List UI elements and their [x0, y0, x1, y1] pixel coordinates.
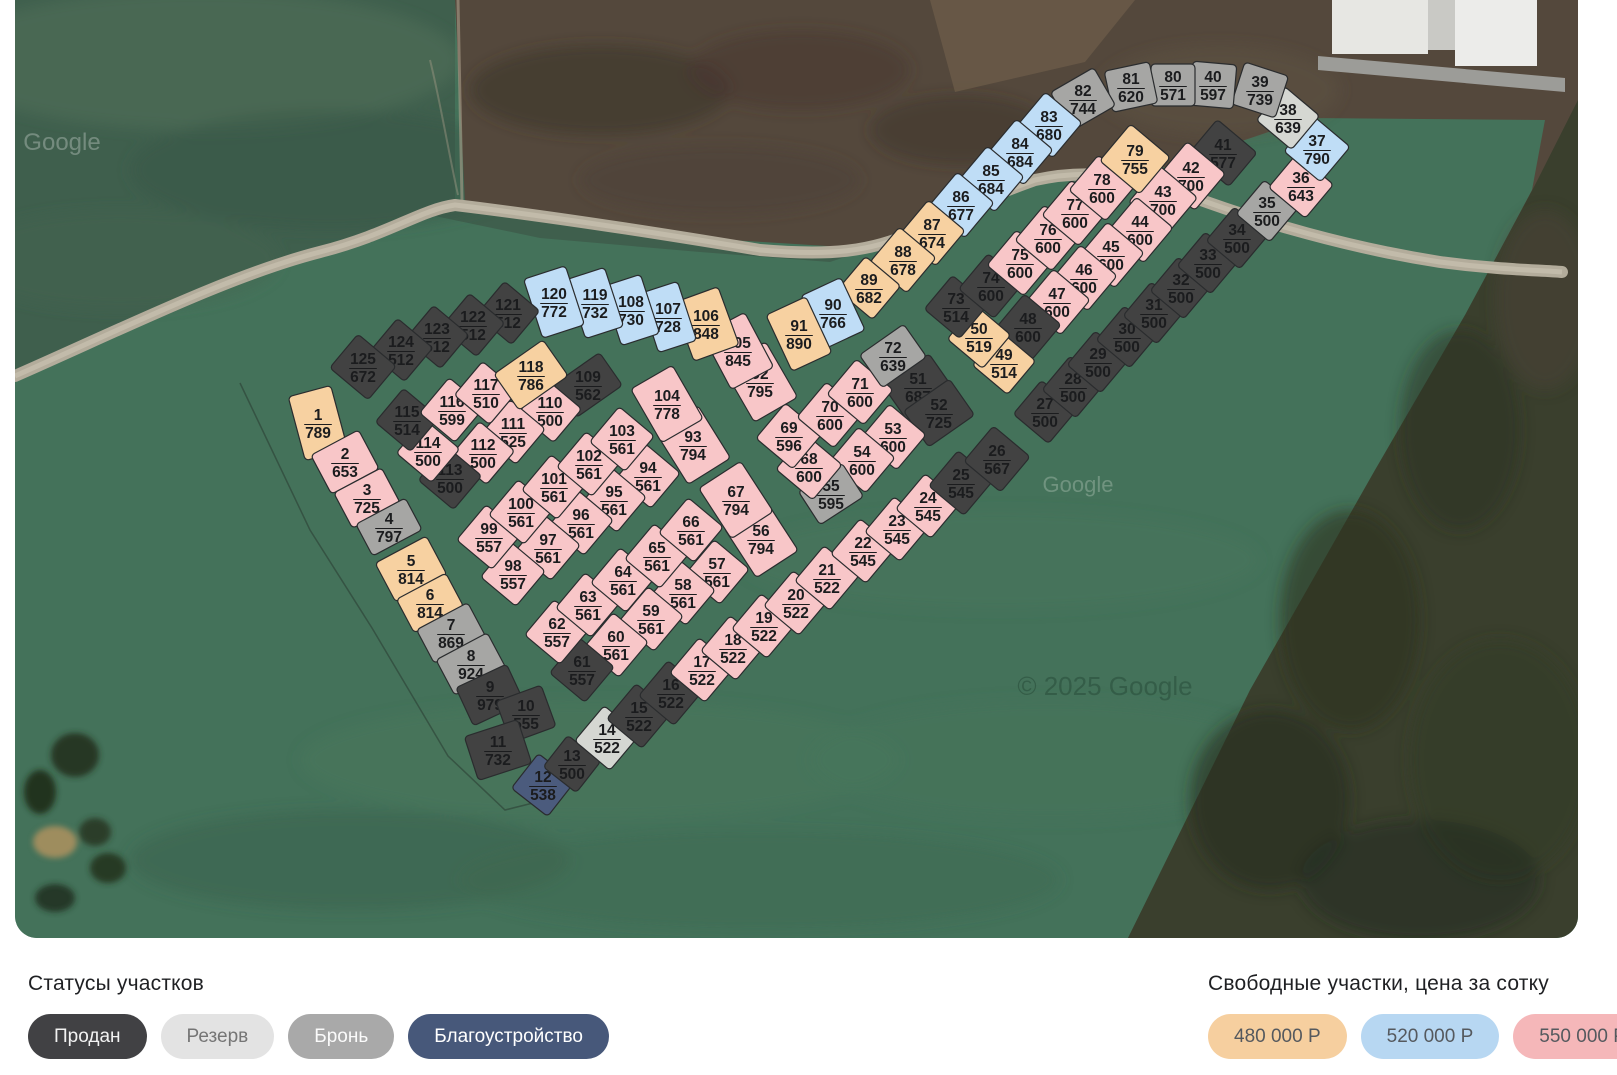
status-pill-sold[interactable]: Продан — [28, 1014, 147, 1059]
status-pill-improve[interactable]: Благоустройство — [408, 1014, 609, 1059]
plot-75-area: 600 — [1007, 265, 1033, 282]
plot-62-number: 62 — [548, 616, 565, 633]
plot-40-area: 597 — [1200, 87, 1226, 104]
plot-109-number: 109 — [575, 369, 601, 386]
plot-81-number: 81 — [1122, 71, 1140, 88]
plot-47-number: 47 — [1048, 286, 1065, 303]
plot-11-area: 732 — [485, 752, 511, 769]
plot-24-area: 545 — [915, 508, 941, 525]
plot-115-number: 115 — [394, 404, 419, 421]
plot-91-number: 91 — [790, 318, 808, 335]
plot-25-area: 545 — [948, 485, 974, 502]
plot-35-number: 35 — [1258, 195, 1276, 212]
plot-118-number: 118 — [518, 359, 543, 376]
plot-122-number: 122 — [460, 309, 486, 326]
plot-1-number: 1 — [314, 407, 323, 424]
plot-108-number: 108 — [618, 294, 644, 311]
plot-51-number: 51 — [909, 371, 927, 388]
plot-114-area: 500 — [415, 453, 441, 470]
plot-6-number: 6 — [426, 587, 435, 604]
plot-48-number: 48 — [1019, 311, 1037, 328]
plot-40-number: 40 — [1204, 69, 1221, 86]
plot-52-number: 52 — [930, 397, 947, 414]
plot-20-number: 20 — [787, 587, 804, 604]
plot-125-number: 125 — [350, 351, 376, 368]
plot-48-area: 600 — [1015, 329, 1041, 346]
plot-112-number: 112 — [470, 437, 495, 454]
plot-63-area: 561 — [575, 607, 601, 624]
plot-109-area: 562 — [575, 387, 601, 404]
plot-36-number: 36 — [1292, 170, 1310, 187]
plot-102-area: 561 — [576, 466, 602, 483]
plot-59-number: 59 — [642, 603, 660, 620]
plot-40[interactable]: 40597 — [1189, 61, 1237, 109]
plot-27-area: 500 — [1032, 414, 1058, 431]
plot-105-area: 845 — [725, 353, 751, 370]
prices-legend: Свободные участки, цена за сотку 480 000… — [1208, 972, 1617, 1059]
plot-80-number: 80 — [1164, 69, 1181, 86]
plot-3-number: 3 — [363, 482, 372, 499]
plot-94-number: 94 — [639, 460, 657, 477]
plot-44-number: 44 — [1131, 214, 1149, 231]
plot-28-area: 500 — [1060, 389, 1086, 406]
plot-42-number: 42 — [1182, 160, 1199, 177]
plot-41-number: 41 — [1214, 137, 1232, 154]
plot-69-area: 596 — [776, 438, 802, 455]
plot-86-number: 86 — [952, 189, 970, 206]
plot-22-area: 545 — [850, 553, 876, 570]
plot-64-number: 64 — [614, 564, 632, 581]
plot-106-number: 106 — [693, 308, 719, 325]
plot-2-area: 653 — [332, 464, 358, 481]
plot-29-area: 500 — [1085, 364, 1111, 381]
status-pill-hold[interactable]: Бронь — [288, 1014, 394, 1059]
plot-67-area: 794 — [723, 502, 749, 519]
statuses-title: Статусы участков — [28, 972, 609, 996]
status-pill-reserve[interactable]: Резерв — [161, 1014, 275, 1059]
plot-118-area: 786 — [518, 377, 544, 394]
plot-93-number: 93 — [684, 429, 702, 446]
plot-93-area: 794 — [680, 447, 706, 464]
price-pill-p480[interactable]: 480 000 Р — [1208, 1014, 1347, 1059]
plot-78-area: 600 — [1089, 190, 1115, 207]
plot-30-area: 500 — [1114, 339, 1140, 356]
plot-98-area: 557 — [500, 576, 526, 593]
plot-79-number: 79 — [1126, 143, 1144, 160]
plot-5-number: 5 — [407, 553, 416, 570]
plot-58-number: 58 — [674, 577, 692, 594]
plot-80-area: 571 — [1160, 87, 1186, 104]
plot-123-number: 123 — [424, 321, 450, 338]
plot-116-area: 599 — [439, 412, 465, 429]
plot-13-area: 500 — [559, 766, 585, 783]
plot-46-number: 46 — [1075, 262, 1093, 279]
plot-90-area: 766 — [820, 315, 846, 332]
plot-14-area: 522 — [594, 740, 620, 757]
plot-101-number: 101 — [541, 471, 567, 488]
plot-11-number: 11 — [490, 734, 507, 751]
plot-99-number: 99 — [480, 521, 498, 538]
plot-7-number: 7 — [447, 617, 456, 634]
plot-33-number: 33 — [1199, 247, 1217, 264]
plot-21-number: 21 — [818, 562, 836, 579]
plot-43-number: 43 — [1154, 184, 1172, 201]
satellite-map-svg: GoogleGoogle© 2025 Google 17892653372547… — [15, 0, 1578, 938]
plot-56-area: 794 — [748, 541, 774, 558]
plot-1-area: 789 — [305, 425, 331, 442]
plot-99-area: 557 — [476, 539, 502, 556]
plot-119-number: 119 — [582, 287, 607, 304]
plot-78-number: 78 — [1093, 172, 1111, 189]
plot-107-number: 107 — [655, 301, 681, 318]
plot-124-number: 124 — [388, 334, 414, 351]
plot-26-number: 26 — [988, 443, 1006, 460]
plot-17-area: 522 — [689, 672, 715, 689]
plot-24-number: 24 — [919, 490, 937, 507]
plot-120-area: 772 — [541, 304, 567, 321]
plot-22-number: 22 — [854, 535, 871, 552]
plot-100-area: 561 — [508, 514, 534, 531]
plot-77-area: 600 — [1062, 215, 1088, 232]
plot-2-number: 2 — [341, 446, 350, 463]
plot-50-area: 519 — [966, 339, 992, 356]
plot-59-area: 561 — [638, 621, 664, 638]
plot-111-number: 111 — [501, 416, 526, 433]
plot-89-area: 682 — [856, 290, 882, 307]
plot-76-area: 600 — [1035, 240, 1061, 257]
plot-55-area: 595 — [818, 496, 844, 513]
plot-31-area: 500 — [1141, 315, 1167, 332]
plot-16-area: 522 — [658, 695, 684, 712]
price-pill-p520[interactable]: 520 000 Р — [1361, 1014, 1500, 1059]
plot-20-area: 522 — [783, 605, 809, 622]
plot-103-number: 103 — [609, 423, 635, 440]
plot-35-area: 500 — [1254, 213, 1280, 230]
google-watermark-3: © 2025 Google — [1017, 671, 1192, 701]
plot-102-number: 102 — [576, 448, 602, 465]
plot-125-area: 672 — [350, 369, 376, 386]
plot-65-area: 561 — [644, 558, 670, 575]
plot-95-number: 95 — [605, 484, 623, 501]
plot-50-number: 50 — [970, 321, 987, 338]
plot-87-number: 87 — [923, 217, 940, 234]
plot-56-number: 56 — [752, 523, 770, 540]
plot-121-number: 121 — [495, 297, 521, 314]
plot-67-number: 67 — [727, 484, 744, 501]
plot-72-number: 72 — [884, 340, 901, 357]
plot-98-number: 98 — [504, 558, 522, 575]
plot-74-area: 600 — [978, 288, 1004, 305]
plot-52-area: 725 — [926, 415, 952, 432]
plot-map[interactable]: GoogleGoogle© 2025 Google 17892653372547… — [15, 0, 1578, 938]
plot-117-area: 510 — [473, 395, 499, 412]
plot-53-number: 53 — [884, 421, 902, 438]
plot-66-area: 561 — [678, 532, 704, 549]
plot-39-area: 739 — [1247, 92, 1273, 109]
plot-71-number: 71 — [851, 376, 869, 393]
plot-8-number: 8 — [467, 648, 476, 665]
plot-26-area: 567 — [984, 461, 1010, 478]
plot-96-number: 96 — [572, 507, 590, 524]
plot-64-area: 561 — [610, 582, 636, 599]
plot-38-area: 639 — [1275, 120, 1301, 137]
plot-90-number: 90 — [824, 297, 841, 314]
plot-120-number: 120 — [541, 286, 567, 303]
plot-39-number: 39 — [1251, 74, 1269, 91]
plot-113-area: 500 — [437, 480, 463, 497]
plot-9-number: 9 — [486, 679, 495, 696]
google-watermark-2: Google — [1043, 472, 1114, 497]
plot-66-number: 66 — [682, 514, 700, 531]
plot-72-area: 639 — [880, 358, 906, 375]
plot-60-number: 60 — [607, 629, 624, 646]
plot-15-area: 522 — [626, 718, 652, 735]
plot-73-number: 73 — [947, 291, 965, 308]
plot-32-area: 500 — [1168, 290, 1194, 307]
plot-79-area: 755 — [1122, 161, 1148, 178]
plot-25-number: 25 — [952, 467, 970, 484]
plot-54-number: 54 — [853, 444, 871, 461]
plot-97-number: 97 — [539, 532, 556, 549]
price-pill-p550[interactable]: 550 000 Р — [1513, 1014, 1617, 1059]
plot-107-area: 728 — [655, 319, 681, 336]
plot-104-number: 104 — [654, 388, 680, 405]
plot-88-area: 678 — [890, 262, 916, 279]
plot-61-number: 61 — [573, 654, 591, 671]
plot-100-number: 100 — [508, 496, 534, 513]
plot-110-number: 110 — [537, 395, 562, 412]
plot-82-number: 82 — [1074, 83, 1091, 100]
google-watermark-1: Google — [23, 129, 100, 156]
plot-5-area: 814 — [398, 571, 424, 588]
plot-19-area: 522 — [751, 628, 777, 645]
price-pill-row: 480 000 Р520 000 Р550 000 Р — [1208, 1014, 1617, 1059]
plot-91-area: 890 — [786, 336, 812, 353]
plot-115-area: 514 — [394, 422, 420, 439]
plot-89-number: 89 — [860, 272, 878, 289]
plot-36-area: 643 — [1288, 188, 1314, 205]
status-pill-row: ПроданРезервБроньБлагоустройство — [28, 1014, 609, 1059]
plot-23-area: 545 — [884, 531, 910, 548]
plot-70-area: 600 — [817, 417, 843, 434]
plot-117-number: 117 — [473, 377, 498, 394]
plot-15-number: 15 — [630, 700, 648, 717]
plot-61-area: 557 — [569, 672, 595, 689]
plot-37-number: 37 — [1308, 133, 1325, 150]
plot-85-number: 85 — [982, 163, 1000, 180]
plot-21-area: 522 — [814, 580, 840, 597]
plot-101-area: 561 — [541, 489, 567, 506]
plot-68-area: 600 — [796, 469, 822, 486]
plot-18-area: 522 — [720, 650, 746, 667]
plot-97-area: 561 — [535, 550, 561, 567]
plot-4-area: 797 — [376, 529, 402, 546]
plot-83-number: 83 — [1040, 109, 1058, 126]
plot-33-area: 500 — [1195, 265, 1221, 282]
plot-45-number: 45 — [1102, 239, 1120, 256]
plot-27-number: 27 — [1036, 396, 1053, 413]
plot-103-area: 561 — [609, 441, 635, 458]
plot-65-number: 65 — [648, 540, 666, 557]
plot-10-number: 10 — [517, 698, 534, 715]
plot-106-area: 848 — [693, 326, 719, 343]
plot-69-number: 69 — [780, 420, 798, 437]
plot-37-area: 790 — [1304, 151, 1330, 168]
plot-62-area: 557 — [544, 634, 570, 651]
plot-34-area: 500 — [1224, 240, 1250, 257]
plot-4-number: 4 — [385, 511, 394, 528]
plot-13-number: 13 — [563, 748, 581, 765]
plot-49-area: 514 — [991, 365, 1017, 382]
plot-57-number: 57 — [708, 556, 725, 573]
plot-84-number: 84 — [1011, 136, 1029, 153]
plot-92-area: 795 — [747, 384, 773, 401]
plot-54-area: 600 — [849, 462, 875, 479]
plot-88-number: 88 — [894, 244, 912, 261]
plot-34-number: 34 — [1228, 222, 1246, 239]
statuses-legend: Статусы участков ПроданРезервБроньБлагоу… — [28, 972, 609, 1059]
plot-119-area: 732 — [582, 305, 608, 322]
prices-title: Свободные участки, цена за сотку — [1208, 972, 1617, 996]
plot-38-number: 38 — [1279, 102, 1297, 119]
plot-104-area: 778 — [654, 406, 680, 423]
plot-19-number: 19 — [755, 610, 773, 627]
plot-71-area: 600 — [847, 394, 873, 411]
plot-73-area: 514 — [943, 309, 969, 326]
plot-29-number: 29 — [1089, 346, 1107, 363]
plot-81-area: 620 — [1118, 89, 1144, 106]
plot-63-number: 63 — [579, 589, 597, 606]
plot-12-area: 538 — [530, 787, 556, 804]
